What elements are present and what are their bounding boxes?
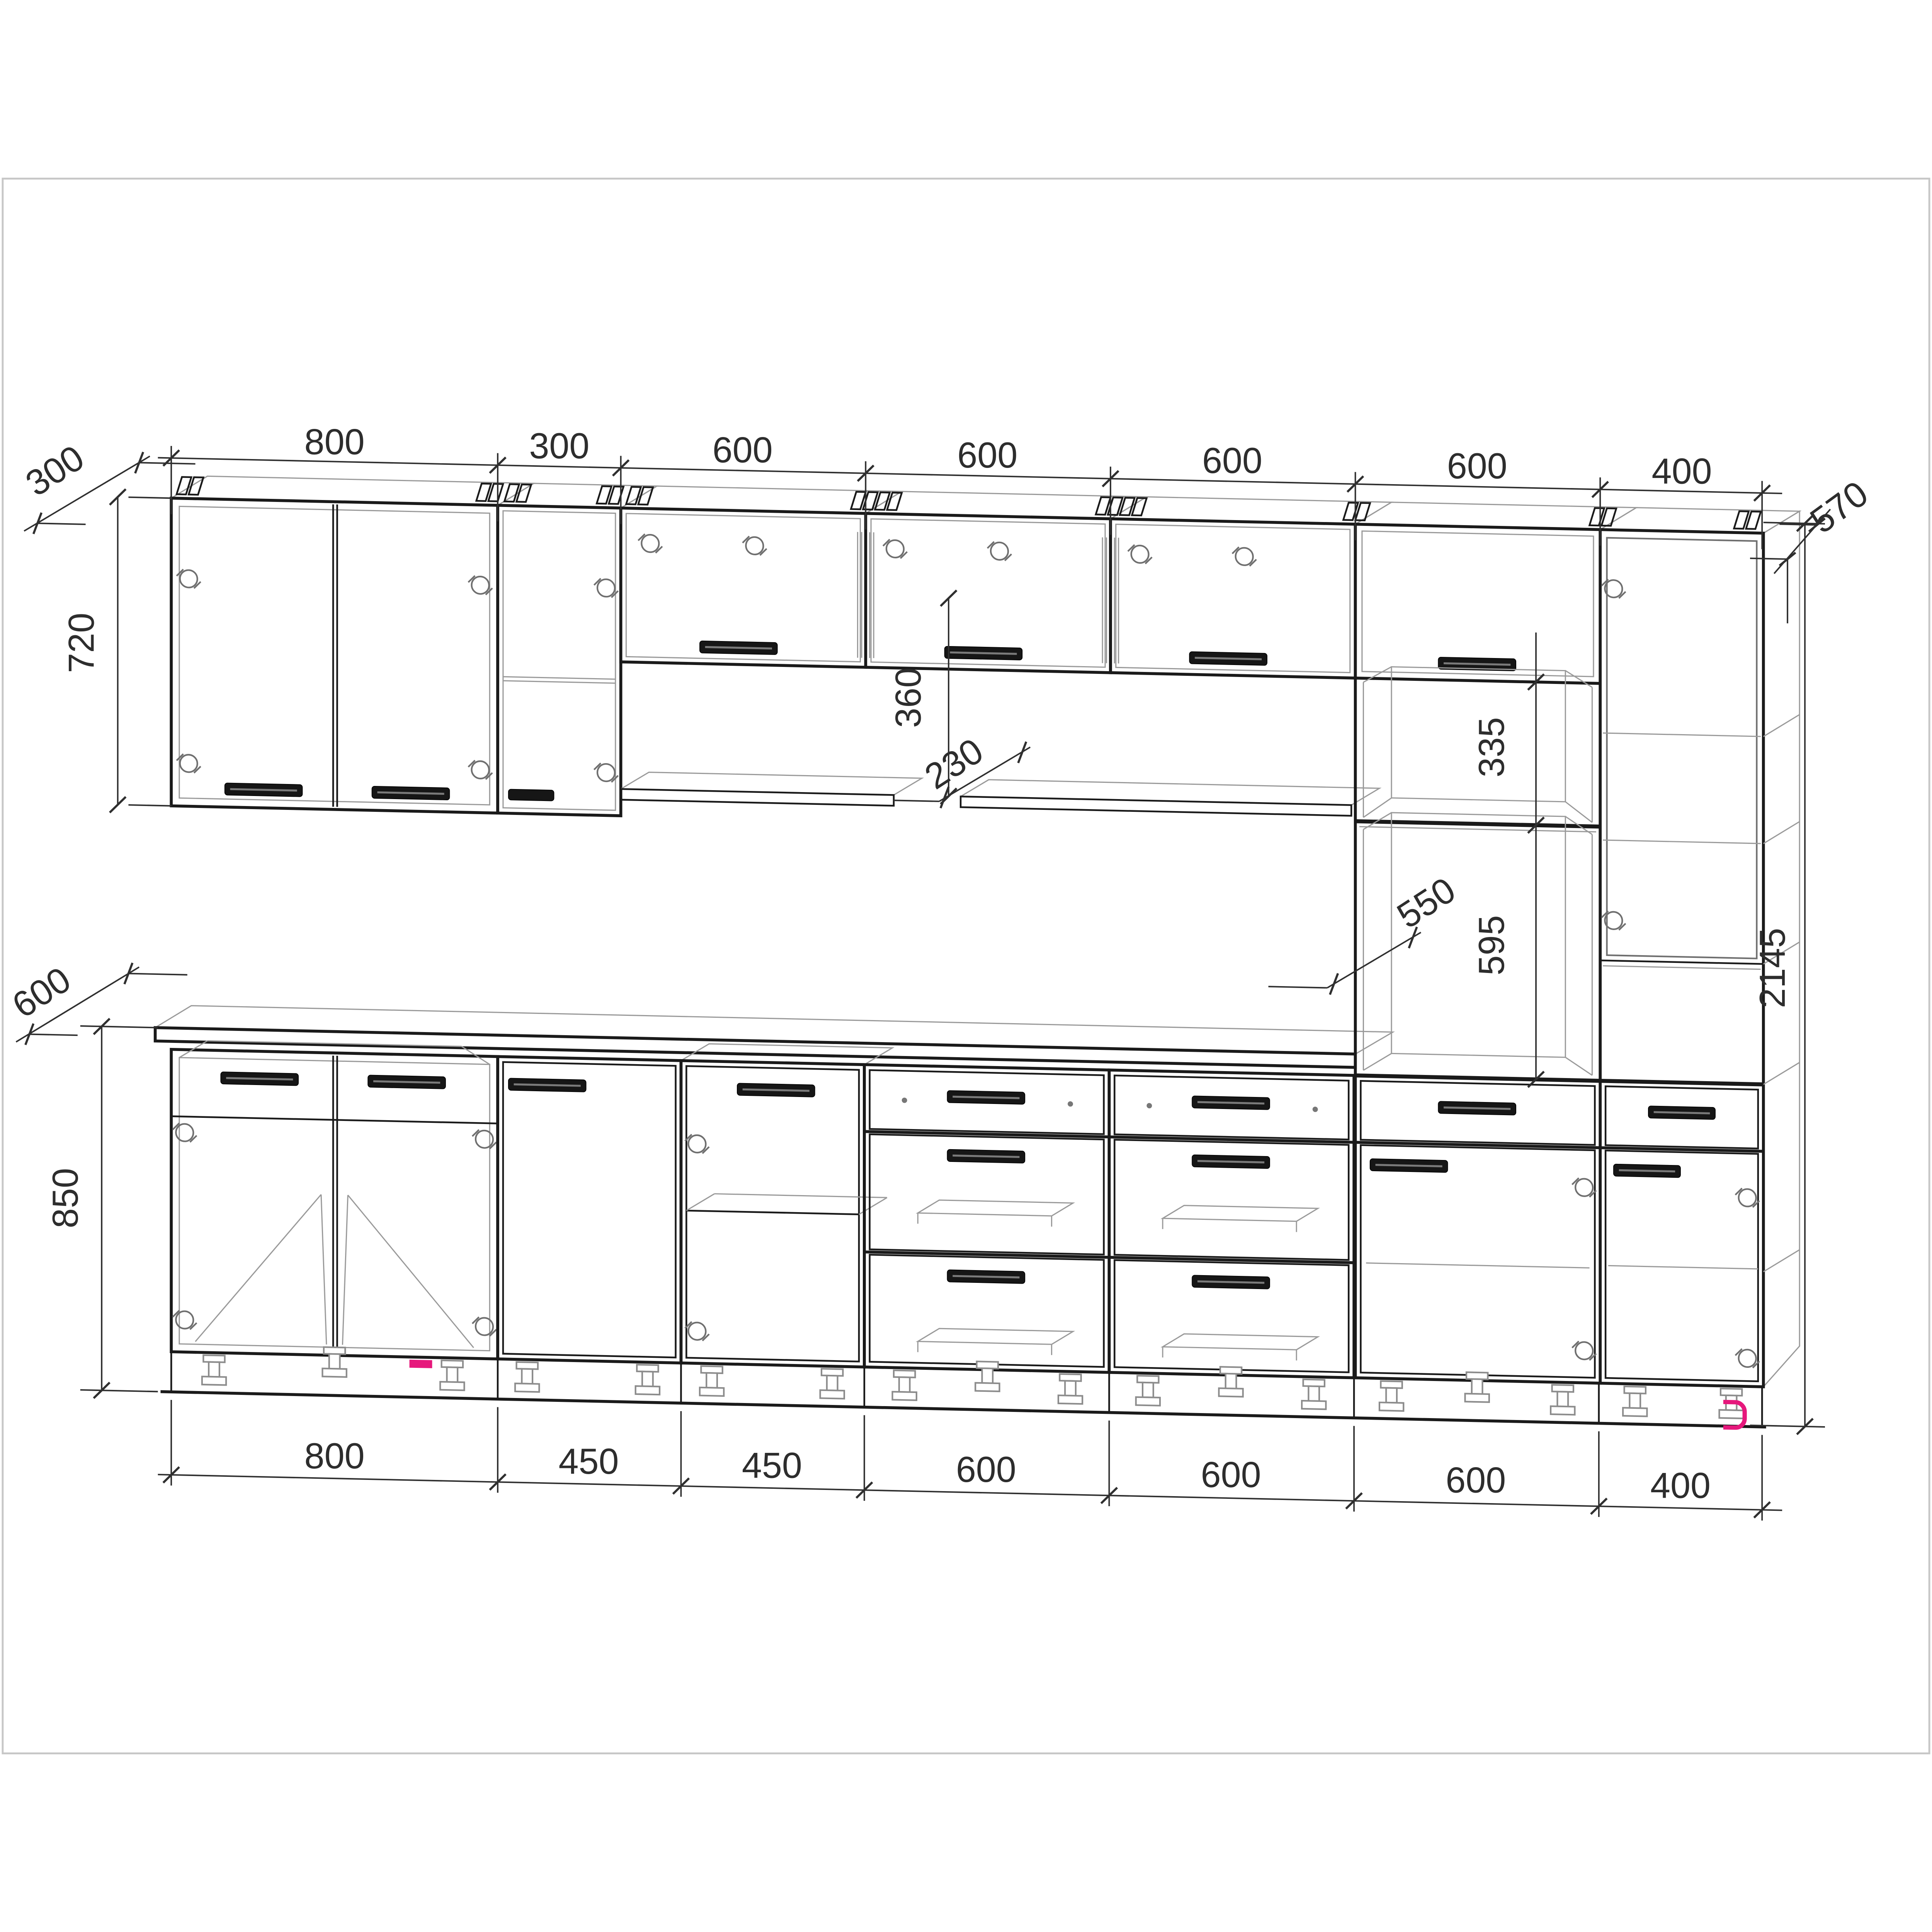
- dim-bottom-4: 600: [956, 1449, 1016, 1490]
- dim-counter-depth: 600: [5, 959, 78, 1026]
- dim-bottom-5: 600: [1201, 1454, 1261, 1495]
- base-cabinet-800: [171, 1040, 498, 1359]
- dim-bottom-6: 600: [1446, 1460, 1506, 1500]
- dim-oven-niche-height: 595: [1471, 915, 1512, 975]
- base-cabinet-450-1: [498, 1056, 681, 1363]
- base-cabinet-450-2: [681, 1043, 892, 1368]
- cabinet-geometry: [16, 442, 1830, 1522]
- dim-top-7: 400: [1652, 451, 1712, 492]
- dim-bottom-3: 450: [742, 1445, 802, 1485]
- dim-wall-height: 720: [61, 613, 101, 673]
- dim-top-3: 600: [713, 429, 773, 470]
- kitchen-elevation-drawing: 800 300 600 600 600 600 400 800 450 450 …: [0, 0, 1932, 1932]
- dim-bottom-7: 400: [1650, 1465, 1711, 1505]
- dim-top-1: 800: [304, 422, 365, 462]
- wall-flip-cabinet-600-3: [1111, 496, 1391, 679]
- dim-wall-depth: 300: [19, 437, 91, 504]
- dim-base-height: 850: [45, 1168, 85, 1228]
- floating-shelf-right: [961, 779, 1379, 816]
- dim-top-4: 600: [957, 435, 1017, 475]
- accent-mark: [410, 1360, 432, 1368]
- drawer-base-600-2: [1109, 1070, 1354, 1378]
- dim-niche-depth: 550: [1390, 869, 1463, 936]
- countertop: [155, 1005, 1393, 1068]
- dim-niche-height: 335: [1471, 717, 1512, 777]
- dim-lines: [16, 442, 1830, 1522]
- dim-top-5: 600: [1202, 440, 1262, 481]
- dim-bottom-2: 450: [559, 1441, 619, 1481]
- dim-shelf-offset: 360: [888, 668, 928, 728]
- wall-cabinet-300: [498, 483, 657, 816]
- dim-top-depth: 570: [1803, 473, 1875, 541]
- dim-top-6: 600: [1447, 446, 1507, 486]
- wall-flip-cabinet-600-1: [621, 485, 902, 668]
- floating-shelf-left: [621, 772, 922, 806]
- wall-cabinet-800: [171, 475, 534, 814]
- flip-door-hardware: [858, 532, 1119, 663]
- dim-shelf-depth: 230: [917, 730, 990, 797]
- wall-flip-cabinet-600-2: [866, 491, 1146, 673]
- dim-top-2: 300: [529, 425, 589, 466]
- plinth: [161, 1352, 1766, 1427]
- drawing-frame: [3, 179, 1929, 1753]
- dim-total-height: 2145: [1752, 928, 1793, 1008]
- dim-bottom-1: 800: [304, 1435, 365, 1476]
- drawer-base-600-1: [864, 1065, 1109, 1372]
